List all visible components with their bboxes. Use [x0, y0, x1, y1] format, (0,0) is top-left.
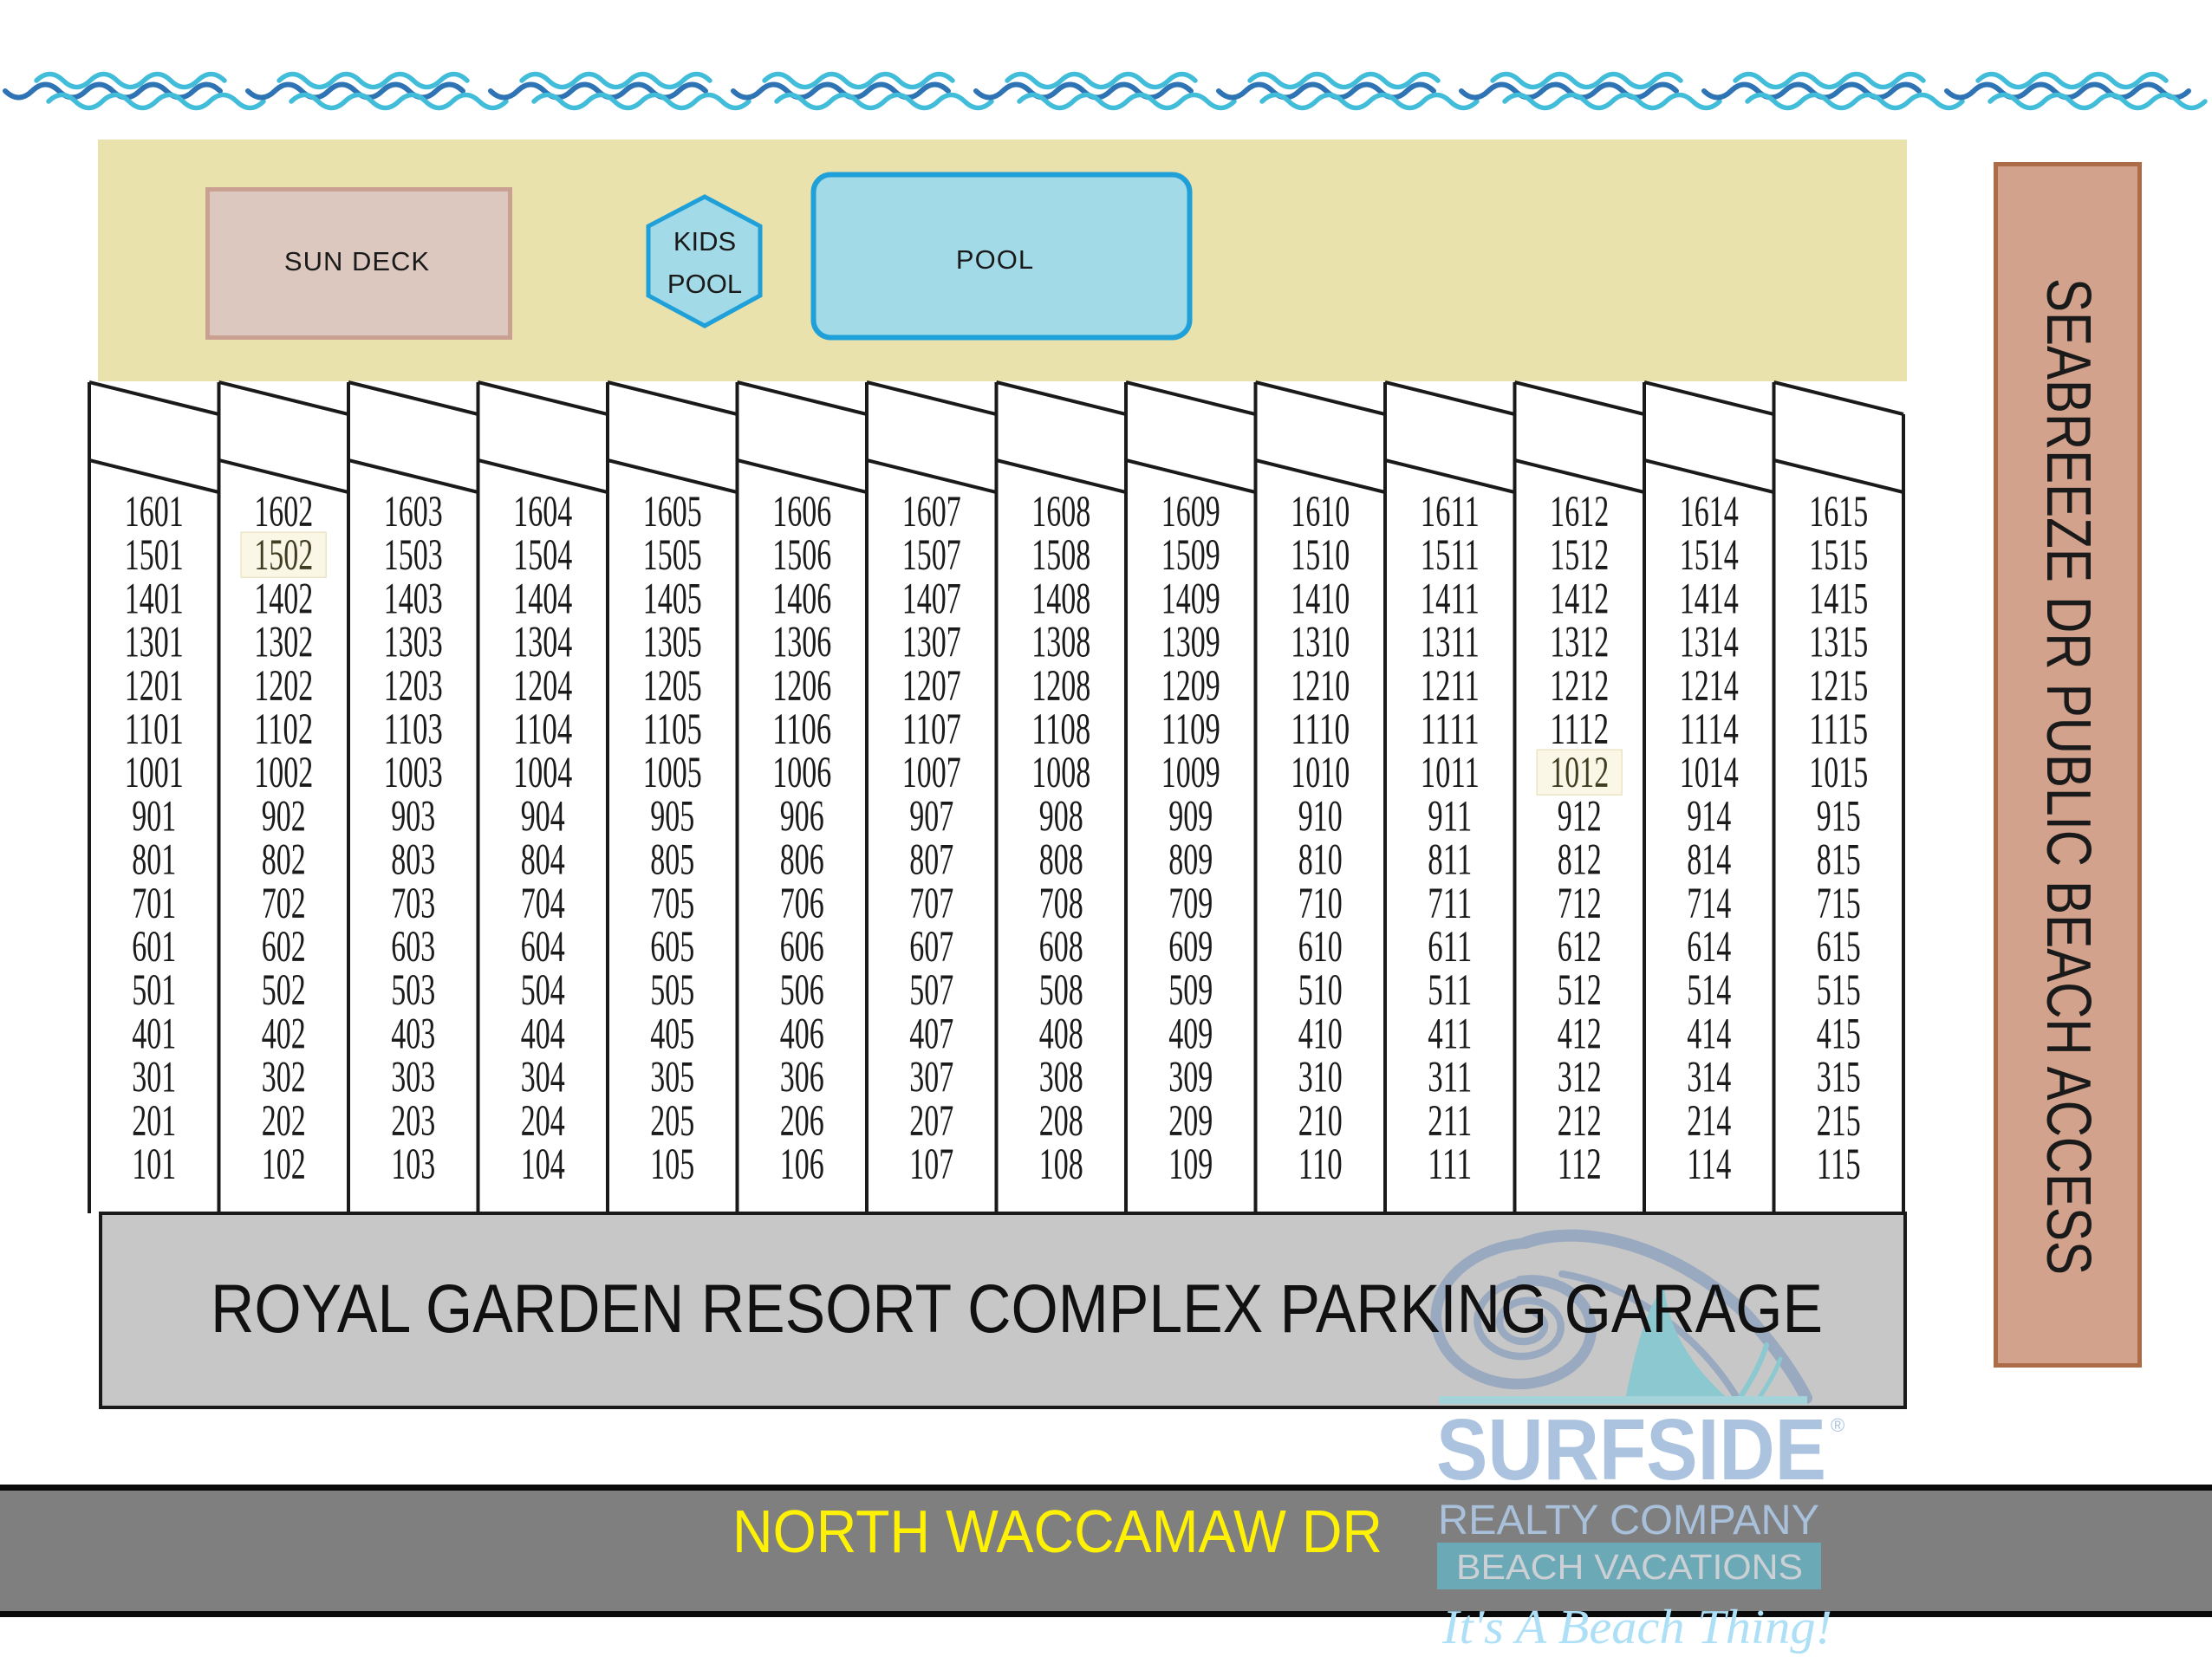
svg-text:101: 101: [132, 1140, 176, 1189]
svg-text:910: 910: [1298, 792, 1343, 841]
svg-text:809: 809: [1168, 836, 1213, 885]
svg-text:1215: 1215: [1809, 662, 1868, 711]
svg-text:1314: 1314: [1680, 619, 1739, 667]
svg-text:805: 805: [650, 836, 694, 885]
svg-text:1201: 1201: [125, 662, 184, 711]
svg-text:711: 711: [1428, 880, 1472, 928]
svg-text:1301: 1301: [125, 619, 184, 667]
svg-text:1115: 1115: [1809, 705, 1868, 754]
svg-text:307: 307: [909, 1054, 953, 1102]
svg-text:512: 512: [1558, 966, 1602, 1015]
svg-text:802: 802: [262, 836, 306, 885]
svg-text:801: 801: [132, 836, 176, 885]
svg-text:1205: 1205: [643, 662, 702, 711]
svg-text:1505: 1505: [643, 531, 702, 580]
svg-text:415: 415: [1817, 1010, 1861, 1058]
svg-text:814: 814: [1687, 836, 1731, 885]
svg-text:411: 411: [1428, 1010, 1472, 1058]
svg-text:304: 304: [521, 1054, 565, 1102]
svg-text:115: 115: [1817, 1140, 1861, 1189]
svg-text:1605: 1605: [643, 488, 702, 536]
svg-text:1502: 1502: [254, 531, 313, 580]
svg-text:312: 312: [1558, 1054, 1602, 1102]
svg-text:1407: 1407: [902, 575, 961, 623]
svg-text:1509: 1509: [1161, 531, 1220, 580]
svg-text:1510: 1510: [1291, 531, 1350, 580]
svg-text:908: 908: [1039, 792, 1083, 841]
svg-text:1005: 1005: [643, 749, 702, 797]
svg-text:509: 509: [1168, 966, 1213, 1015]
svg-text:SEABREEZE DR PUBLIC BEACH ACCE: SEABREEZE DR PUBLIC BEACH ACCESS: [2033, 278, 2103, 1275]
svg-text:609: 609: [1168, 923, 1213, 971]
svg-text:1003: 1003: [384, 749, 443, 797]
svg-text:1307: 1307: [902, 619, 961, 667]
svg-text:515: 515: [1817, 966, 1861, 1015]
svg-text:1208: 1208: [1031, 662, 1090, 711]
svg-text:SURFSIDE: SURFSIDE: [1436, 1401, 1826, 1498]
svg-text:911: 911: [1428, 792, 1472, 841]
svg-text:107: 107: [909, 1140, 953, 1189]
svg-text:907: 907: [909, 792, 953, 841]
svg-text:1315: 1315: [1809, 619, 1868, 667]
svg-text:203: 203: [391, 1097, 435, 1146]
svg-text:114: 114: [1687, 1140, 1731, 1189]
svg-text:402: 402: [262, 1010, 306, 1058]
svg-text:1405: 1405: [643, 575, 702, 623]
svg-text:815: 815: [1817, 836, 1861, 885]
svg-text:207: 207: [909, 1097, 953, 1146]
svg-text:211: 211: [1428, 1097, 1472, 1146]
svg-text:803: 803: [391, 836, 435, 885]
svg-text:501: 501: [132, 966, 176, 1015]
svg-text:1008: 1008: [1031, 749, 1090, 797]
svg-text:901: 901: [132, 792, 176, 841]
svg-text:1512: 1512: [1550, 531, 1609, 580]
svg-text:915: 915: [1817, 792, 1861, 841]
svg-text:507: 507: [909, 966, 953, 1015]
svg-text:1214: 1214: [1680, 662, 1739, 711]
svg-text:1015: 1015: [1809, 749, 1868, 797]
svg-text:610: 610: [1298, 923, 1343, 971]
svg-text:706: 706: [780, 880, 824, 928]
svg-text:102: 102: [262, 1140, 306, 1189]
svg-text:NORTH WACCAMAW DR: NORTH WACCAMAW DR: [732, 1498, 1382, 1565]
svg-text:615: 615: [1817, 923, 1861, 971]
svg-text:1106: 1106: [772, 705, 831, 754]
svg-text:1006: 1006: [772, 749, 831, 797]
svg-text:1105: 1105: [643, 705, 702, 754]
svg-text:1503: 1503: [384, 531, 443, 580]
svg-text:112: 112: [1558, 1140, 1602, 1189]
svg-text:1012: 1012: [1550, 749, 1609, 797]
svg-text:703: 703: [391, 880, 435, 928]
svg-text:715: 715: [1817, 880, 1861, 928]
svg-text:614: 614: [1687, 923, 1731, 971]
svg-text:1206: 1206: [772, 662, 831, 711]
svg-text:1103: 1103: [384, 705, 443, 754]
svg-text:201: 201: [132, 1097, 176, 1146]
svg-text:1302: 1302: [254, 619, 313, 667]
svg-text:1401: 1401: [125, 575, 184, 623]
svg-text:401: 401: [132, 1010, 176, 1058]
svg-text:308: 308: [1039, 1054, 1083, 1102]
svg-text:BEACH VACATIONS: BEACH VACATIONS: [1456, 1547, 1803, 1587]
svg-text:409: 409: [1168, 1010, 1213, 1058]
svg-text:®: ®: [1831, 1414, 1844, 1436]
svg-text:811: 811: [1428, 836, 1472, 885]
svg-text:1305: 1305: [643, 619, 702, 667]
svg-text:1002: 1002: [254, 749, 313, 797]
svg-text:1306: 1306: [772, 619, 831, 667]
svg-text:511: 511: [1428, 966, 1472, 1015]
svg-text:1604: 1604: [513, 488, 572, 536]
svg-text:109: 109: [1168, 1140, 1213, 1189]
svg-text:1004: 1004: [513, 749, 572, 797]
svg-text:306: 306: [780, 1054, 824, 1102]
svg-text:1501: 1501: [125, 531, 184, 580]
svg-text:1010: 1010: [1291, 749, 1350, 797]
svg-text:1212: 1212: [1550, 662, 1609, 711]
svg-text:708: 708: [1039, 880, 1083, 928]
svg-text:1101: 1101: [125, 705, 184, 754]
svg-text:1609: 1609: [1161, 488, 1220, 536]
svg-text:1406: 1406: [772, 575, 831, 623]
svg-text:1507: 1507: [902, 531, 961, 580]
svg-text:1504: 1504: [513, 531, 572, 580]
svg-text:1207: 1207: [902, 662, 961, 711]
svg-text:1611: 1611: [1421, 488, 1480, 536]
svg-text:215: 215: [1817, 1097, 1861, 1146]
svg-text:510: 510: [1298, 966, 1343, 1015]
svg-text:1014: 1014: [1680, 749, 1739, 797]
svg-text:1211: 1211: [1421, 662, 1480, 711]
svg-text:314: 314: [1687, 1054, 1731, 1102]
svg-text:806: 806: [780, 836, 824, 885]
svg-text:902: 902: [262, 792, 306, 841]
svg-text:1411: 1411: [1421, 575, 1480, 623]
svg-text:1112: 1112: [1550, 705, 1609, 754]
svg-text:1414: 1414: [1680, 575, 1739, 623]
svg-text:505: 505: [650, 966, 694, 1015]
svg-text:812: 812: [1558, 836, 1602, 885]
svg-text:1312: 1312: [1550, 619, 1609, 667]
svg-text:1209: 1209: [1161, 662, 1220, 711]
svg-text:108: 108: [1039, 1140, 1083, 1189]
svg-text:1107: 1107: [902, 705, 961, 754]
svg-text:1001: 1001: [125, 749, 184, 797]
svg-text:611: 611: [1428, 923, 1472, 971]
svg-text:1612: 1612: [1550, 488, 1609, 536]
svg-text:508: 508: [1039, 966, 1083, 1015]
svg-text:1403: 1403: [384, 575, 443, 623]
svg-text:1409: 1409: [1161, 575, 1220, 623]
svg-text:1412: 1412: [1550, 575, 1609, 623]
svg-text:210: 210: [1298, 1097, 1343, 1146]
svg-text:POOL: POOL: [667, 269, 742, 299]
svg-text:302: 302: [262, 1054, 306, 1102]
svg-text:1011: 1011: [1421, 749, 1480, 797]
svg-text:607: 607: [909, 923, 953, 971]
svg-text:810: 810: [1298, 836, 1343, 885]
svg-text:REALTY COMPANY: REALTY COMPANY: [1438, 1498, 1819, 1543]
svg-text:309: 309: [1168, 1054, 1213, 1102]
svg-text:1602: 1602: [254, 488, 313, 536]
svg-text:1615: 1615: [1809, 488, 1868, 536]
svg-text:914: 914: [1687, 792, 1731, 841]
svg-text:707: 707: [909, 880, 953, 928]
svg-text:209: 209: [1168, 1097, 1213, 1146]
svg-text:1109: 1109: [1161, 705, 1220, 754]
svg-text:1007: 1007: [902, 749, 961, 797]
svg-text:605: 605: [650, 923, 694, 971]
svg-text:1110: 1110: [1291, 705, 1350, 754]
svg-text:904: 904: [521, 792, 565, 841]
svg-text:714: 714: [1687, 880, 1731, 928]
svg-text:603: 603: [391, 923, 435, 971]
svg-text:804: 804: [521, 836, 565, 885]
svg-text:710: 710: [1298, 880, 1343, 928]
svg-text:ROYAL GARDEN RESORT COMPLEX PA: ROYAL GARDEN RESORT COMPLEX PARKING GARA…: [211, 1270, 1823, 1347]
svg-text:1114: 1114: [1680, 705, 1739, 754]
svg-text:503: 503: [391, 966, 435, 1015]
svg-text:1202: 1202: [254, 662, 313, 711]
svg-text:1415: 1415: [1809, 575, 1868, 623]
svg-text:104: 104: [521, 1140, 565, 1189]
svg-text:704: 704: [521, 880, 565, 928]
svg-text:1203: 1203: [384, 662, 443, 711]
svg-text:315: 315: [1817, 1054, 1861, 1102]
svg-text:906: 906: [780, 792, 824, 841]
svg-text:1603: 1603: [384, 488, 443, 536]
svg-text:612: 612: [1558, 923, 1602, 971]
svg-text:106: 106: [780, 1140, 824, 1189]
svg-text:808: 808: [1039, 836, 1083, 885]
svg-text:212: 212: [1558, 1097, 1602, 1146]
svg-text:1009: 1009: [1161, 749, 1220, 797]
svg-text:407: 407: [909, 1010, 953, 1058]
svg-text:301: 301: [132, 1054, 176, 1102]
svg-text:1402: 1402: [254, 575, 313, 623]
svg-text:KIDS: KIDS: [673, 226, 736, 257]
svg-text:709: 709: [1168, 880, 1213, 928]
svg-text:1309: 1309: [1161, 619, 1220, 667]
svg-text:1210: 1210: [1291, 662, 1350, 711]
svg-text:111: 111: [1428, 1140, 1472, 1189]
svg-text:1514: 1514: [1680, 531, 1739, 580]
svg-text:205: 205: [650, 1097, 694, 1146]
svg-text:602: 602: [262, 923, 306, 971]
svg-text:1410: 1410: [1291, 575, 1350, 623]
svg-text:903: 903: [391, 792, 435, 841]
svg-text:206: 206: [780, 1097, 824, 1146]
svg-text:1614: 1614: [1680, 488, 1739, 536]
svg-text:1303: 1303: [384, 619, 443, 667]
svg-text:604: 604: [521, 923, 565, 971]
svg-text:606: 606: [780, 923, 824, 971]
svg-text:311: 311: [1428, 1054, 1472, 1102]
svg-text:105: 105: [650, 1140, 694, 1189]
svg-text:1508: 1508: [1031, 531, 1090, 580]
svg-text:1311: 1311: [1421, 619, 1480, 667]
svg-text:103: 103: [391, 1140, 435, 1189]
svg-text:408: 408: [1039, 1010, 1083, 1058]
svg-text:214: 214: [1687, 1097, 1731, 1146]
svg-text:608: 608: [1039, 923, 1083, 971]
svg-text:601: 601: [132, 923, 176, 971]
svg-text:807: 807: [909, 836, 953, 885]
svg-text:1404: 1404: [513, 575, 572, 623]
svg-text:1408: 1408: [1031, 575, 1090, 623]
svg-text:It's A Beach Thing!: It's A Beach Thing!: [1441, 1601, 1832, 1654]
svg-text:SUN DECK: SUN DECK: [284, 246, 430, 276]
svg-text:208: 208: [1039, 1097, 1083, 1146]
svg-text:702: 702: [262, 880, 306, 928]
svg-text:303: 303: [391, 1054, 435, 1102]
svg-text:1111: 1111: [1421, 705, 1480, 754]
svg-text:1304: 1304: [513, 619, 572, 667]
svg-text:909: 909: [1168, 792, 1213, 841]
svg-text:404: 404: [521, 1010, 565, 1058]
svg-text:1610: 1610: [1291, 488, 1350, 536]
svg-text:1515: 1515: [1809, 531, 1868, 580]
svg-text:502: 502: [262, 966, 306, 1015]
svg-text:1606: 1606: [772, 488, 831, 536]
svg-text:410: 410: [1298, 1010, 1343, 1058]
svg-text:204: 204: [521, 1097, 565, 1146]
svg-text:905: 905: [650, 792, 694, 841]
svg-text:POOL: POOL: [956, 244, 1034, 275]
svg-text:1104: 1104: [513, 705, 572, 754]
svg-text:1108: 1108: [1031, 705, 1090, 754]
svg-text:110: 110: [1298, 1140, 1343, 1189]
svg-text:405: 405: [650, 1010, 694, 1058]
svg-text:1308: 1308: [1031, 619, 1090, 667]
svg-text:305: 305: [650, 1054, 694, 1102]
svg-text:504: 504: [521, 966, 565, 1015]
svg-text:1601: 1601: [125, 488, 184, 536]
svg-text:412: 412: [1558, 1010, 1602, 1058]
svg-text:912: 912: [1558, 792, 1602, 841]
svg-text:1506: 1506: [772, 531, 831, 580]
svg-text:1204: 1204: [513, 662, 572, 711]
svg-text:712: 712: [1558, 880, 1602, 928]
svg-text:1607: 1607: [902, 488, 961, 536]
svg-text:1102: 1102: [254, 705, 313, 754]
svg-text:414: 414: [1687, 1010, 1731, 1058]
svg-text:310: 310: [1298, 1054, 1343, 1102]
svg-text:701: 701: [132, 880, 176, 928]
svg-text:506: 506: [780, 966, 824, 1015]
svg-text:1608: 1608: [1031, 488, 1090, 536]
svg-text:1511: 1511: [1421, 531, 1480, 580]
svg-text:202: 202: [262, 1097, 306, 1146]
svg-text:403: 403: [391, 1010, 435, 1058]
svg-text:406: 406: [780, 1010, 824, 1058]
svg-text:514: 514: [1687, 966, 1731, 1015]
svg-text:705: 705: [650, 880, 694, 928]
svg-text:1310: 1310: [1291, 619, 1350, 667]
